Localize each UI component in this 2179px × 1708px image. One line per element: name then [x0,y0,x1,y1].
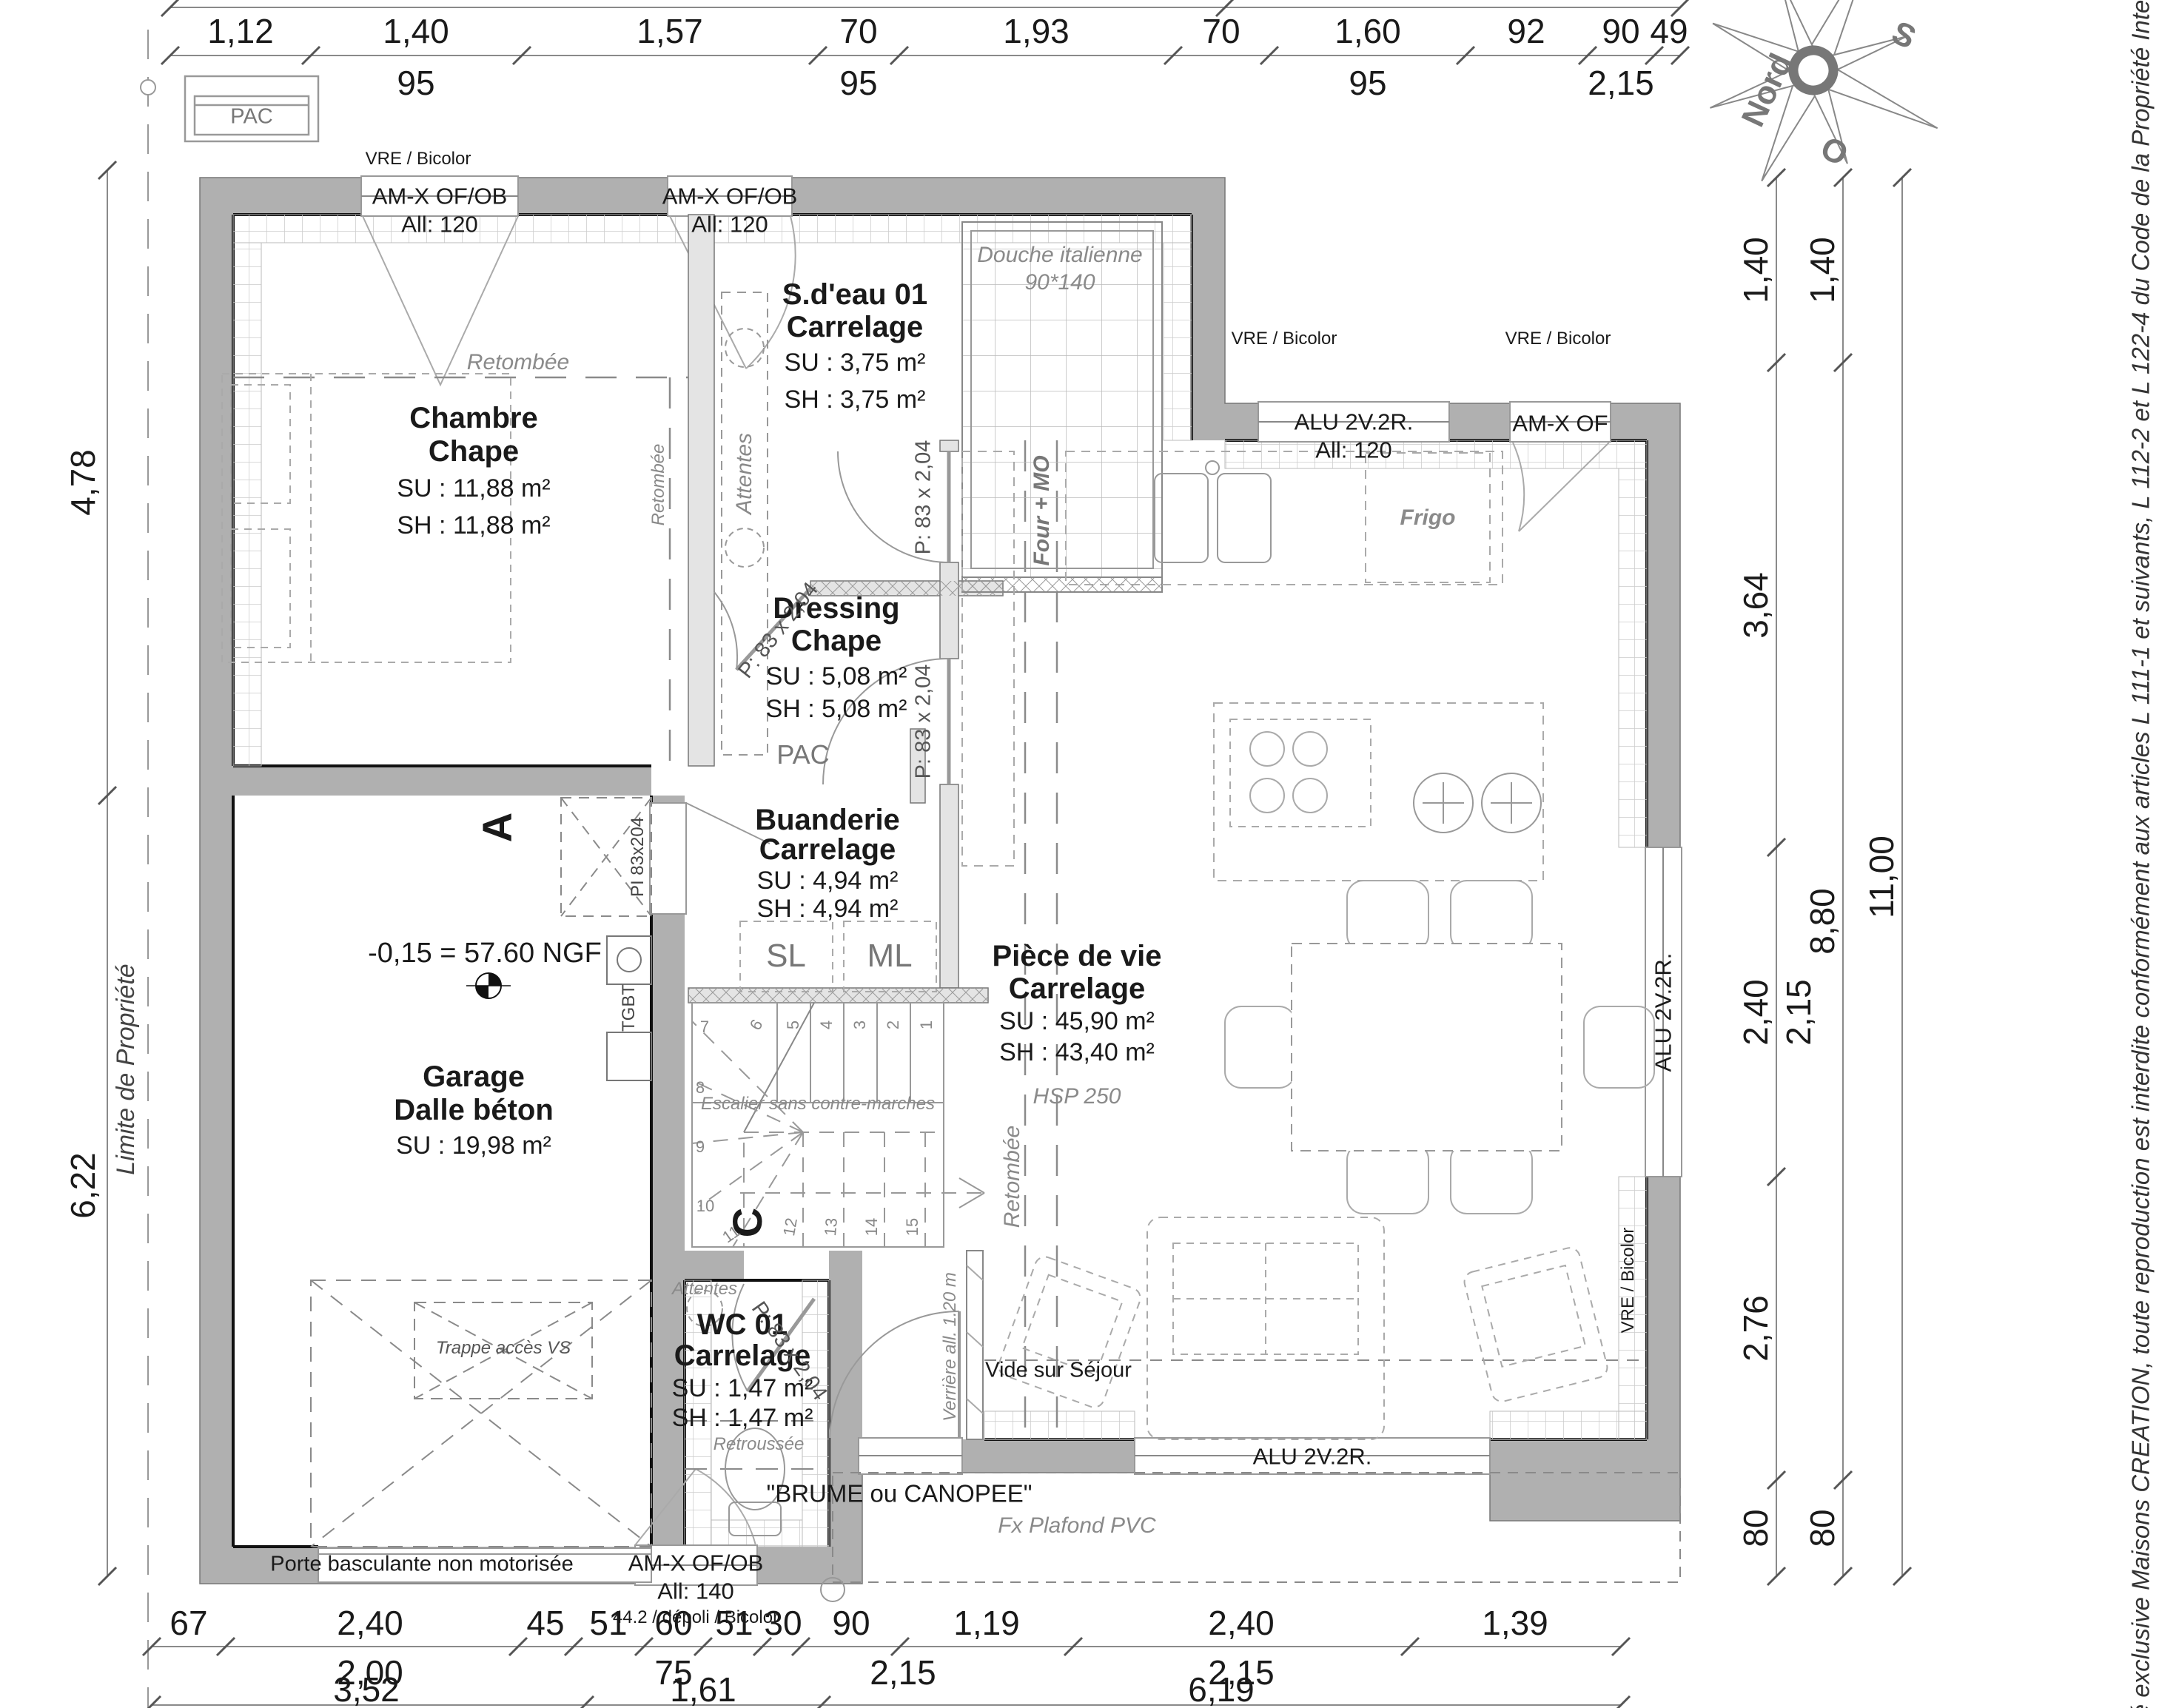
frigo-label: Frigo [1400,507,1456,529]
dim-top-sub-0: 95 [397,66,434,100]
vre-label-1: VRE / Bicolor [366,150,471,168]
dim-top-8: 90 [1602,14,1639,48]
dim-right-a0: 1,40 [1739,237,1773,303]
garage-details [311,798,651,1582]
dim-top-6: 1,60 [1334,14,1401,48]
dim-right-b3: 80 [1805,1509,1839,1547]
dim-bot3-1: 1,61 [670,1672,736,1707]
room-sdeau-name: S.d'eau 01 [782,280,927,309]
retombee-sdeau: Retombée [650,444,668,526]
verriere [967,1251,983,1439]
dim-top-0: 1,12 [207,14,274,48]
window-w2-allege: All: 120 [691,213,768,236]
room-piece-name: Pièce de vie [992,941,1161,971]
trappe-label: Trappe accès VS [436,1339,571,1357]
floor-plan: 1,12 1,40 1,57 70 1,93 70 1,60 92 90 49 … [0,0,2179,1708]
room-piece-sh: SH : 43,40 m² [999,1040,1155,1065]
dim-top-7: 92 [1507,14,1545,48]
window-w3-allege: All: 120 [1315,439,1391,462]
copyright-notice: Propriété exclusive Maisons CREATION, to… [2129,0,2153,1708]
room-garage-floor: Dalle béton [394,1095,554,1125]
dim-bot3-0: 3,52 [333,1672,400,1707]
window-w6-glazing: 44.2 / dépoli / Bicolor [613,1609,779,1627]
dim-top-9: 49 [1650,14,1688,48]
sl-label: SL [766,940,806,972]
stair-num-4: 4 [819,1021,835,1029]
dim-bot1-0: 67 [169,1606,207,1640]
stair-num-10: 10 [696,1198,714,1214]
window-w1-allege: All: 120 [401,213,477,236]
attentes-wc: Attentes [672,1280,737,1298]
stair-num-7: 7 [700,1019,709,1035]
window-w7-type: ALU 2V.2R. [1652,953,1675,1072]
dim-right-a4: 80 [1739,1509,1773,1547]
dim-top-sub-1: 95 [839,66,877,100]
room-dressing-su: SU : 5,08 m² [766,664,907,689]
room-sdeau-sh: SH : 3,75 m² [785,387,926,412]
douche-label-1: Douche italienne [977,244,1143,266]
douche-label-2: 90*140 [1024,272,1095,294]
dim-right-c0: 11,00 [1864,835,1898,918]
dim-top-sub-3: 2,15 [1588,66,1654,100]
room-dressing-sh: SH : 5,08 m² [766,696,907,722]
dim-right-b1: 2,15 [1782,979,1816,1046]
window-w6-type: AM-X OF/OB [628,1552,764,1575]
dim-top-sub-2: 95 [1349,66,1386,100]
dim-bot1-1: 2,40 [337,1606,403,1640]
dim-top-1: 1,40 [383,14,449,48]
retombee-sejour: Retombée [1001,1126,1024,1228]
room-chambre-name: Chambre [409,403,537,433]
room-piece-hsp: HSP 250 [1033,1086,1121,1108]
room-chambre-sh: SH : 11,88 m² [397,513,550,538]
dim-top-5: 70 [1202,14,1240,48]
window-w4-type: AM-X OF [1512,412,1608,435]
window-w5-type: ALU 2V.2R. [1253,1445,1372,1468]
vide-sejour-label: Vide sur Séjour [985,1360,1132,1382]
room-wc-sh: SH : 1,47 m² [672,1405,813,1430]
garage-ngf: -0,15 = 57.60 NGF [368,939,602,967]
room-dressing-floor: Chape [791,626,882,656]
room-buanderie-name: Buanderie [755,805,900,835]
pac-exterior-label: PAC [230,107,272,128]
ngf-marker [466,973,511,998]
window-w2-type: AM-X OF/OB [662,185,798,208]
compass-rose [1661,0,1995,239]
dim-right-a1: 3,64 [1739,572,1773,639]
dim-bot1-10: 1,39 [1482,1606,1548,1640]
porte-basculante-label: Porte basculante non motorisée [270,1554,573,1576]
room-buanderie-sh: SH : 4,94 m² [757,896,899,921]
dim-top-4: 1,93 [1003,14,1070,48]
stair-num-8: 8 [696,1080,705,1096]
vre-label-3: VRE / Bicolor [1505,330,1611,348]
stair-num-3: 3 [852,1021,868,1029]
pac-interior-label: PAC [776,742,829,768]
vre-label-2: VRE / Bicolor [1232,330,1337,348]
vre-label-4: VRE / Bicolor [1619,1228,1637,1334]
room-piece-su: SU : 45,90 m² [999,1009,1155,1034]
dim-bot1-9: 2,40 [1208,1606,1275,1640]
stair-num-14: 14 [864,1218,880,1236]
stair-num-2: 2 [885,1021,902,1029]
room-sdeau-floor: Carrelage [787,312,924,342]
room-buanderie-su: SU : 4,94 m² [757,868,899,893]
window-w6-allege: All: 140 [657,1580,733,1603]
fx-plafond-label: Fx Plafond PVC [998,1515,1155,1537]
limite-propriete-label: Limite de Propriété [113,964,138,1174]
stair-num-13: 13 [822,1217,840,1237]
dim-left-1: 6,22 [66,1152,100,1219]
four-mo: Four + MO [1031,455,1053,565]
dim-right-b0: 1,40 [1805,237,1839,303]
dim-top-3: 70 [839,14,877,48]
door-buanderie-label: P: 83 x 2,04 [913,665,935,779]
dim-right-a3: 2,76 [1739,1295,1773,1362]
dim-bot1-8: 1,19 [953,1606,1020,1640]
dim-bot1-2: 45 [526,1606,564,1640]
dim-bot2-2: 2,15 [870,1655,936,1689]
dining-set [1225,881,1654,1214]
section-a-label: A [477,813,518,842]
stair-num-12: 12 [781,1217,800,1237]
room-buanderie-floor: Carrelage [759,835,896,864]
window-w1-type: AM-X OF/OB [372,185,508,208]
room-chambre-su: SU : 11,88 m² [397,476,550,501]
dim-bot1-7: 90 [832,1606,870,1640]
window-w3-type: ALU 2V.2R. [1295,411,1414,434]
door-kitchen-label: P: 83 x 2,04 [913,440,935,555]
room-chambre-floor: Chape [429,437,519,466]
lounge-furniture [996,1217,1609,1439]
room-garage-su: SU : 19,98 m² [396,1133,551,1158]
stair-num-1: 1 [919,1021,935,1029]
dim-bot3-2: 6,19 [1188,1672,1255,1707]
room-sdeau-su: SU : 3,75 m² [785,350,926,375]
dim-left-0: 4,78 [66,449,100,516]
retombee-chambre: Retombée [467,352,569,374]
property-line [141,30,155,1708]
tgbt-label: TGBT [620,984,638,1032]
room-piece-floor: Carrelage [1009,974,1146,1003]
stair-num-5: 5 [785,1021,802,1029]
stair-num-9: 9 [696,1139,705,1155]
dim-right-b2: 8,80 [1805,888,1839,955]
retroussee-label: Retroussée [714,1436,805,1453]
room-garage-name: Garage [423,1062,525,1092]
ml-label: ML [867,940,912,972]
attentes-sdeau: Attentes [733,433,756,514]
escalier-label: Escalier sans contre-marches [701,1095,935,1113]
pi-door-label: PI 83x204 [629,817,647,897]
room-wc-su: SU : 1,47 m² [672,1376,813,1401]
brume-label: "BRUME ou CANOPEE" [766,1482,1032,1506]
stair-num-15: 15 [904,1218,921,1236]
dim-right-a2: 2,40 [1739,979,1773,1046]
verriere-label: Verrière all. 1.20 m [941,1272,959,1422]
dim-top-2: 1,57 [637,14,703,48]
